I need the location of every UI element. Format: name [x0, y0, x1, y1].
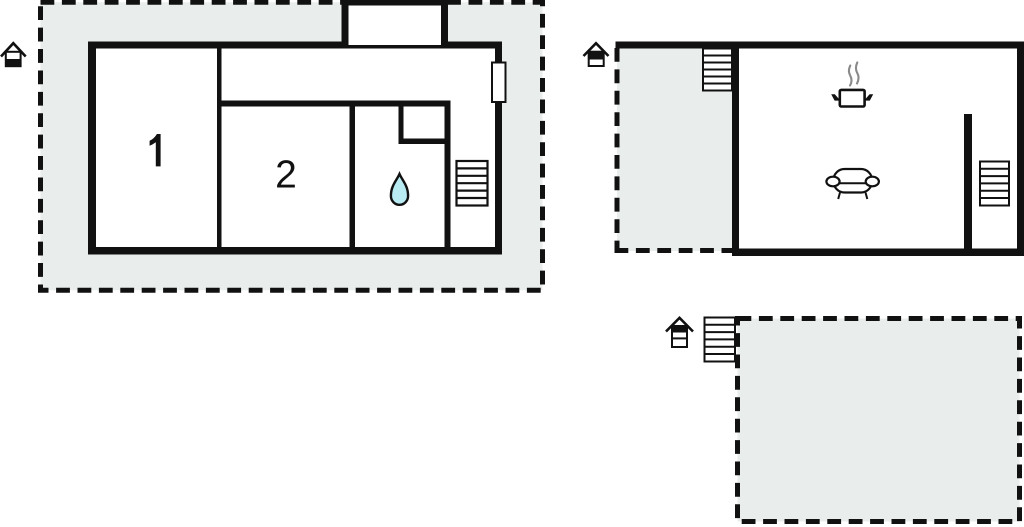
svg-text:2: 2	[275, 154, 297, 197]
